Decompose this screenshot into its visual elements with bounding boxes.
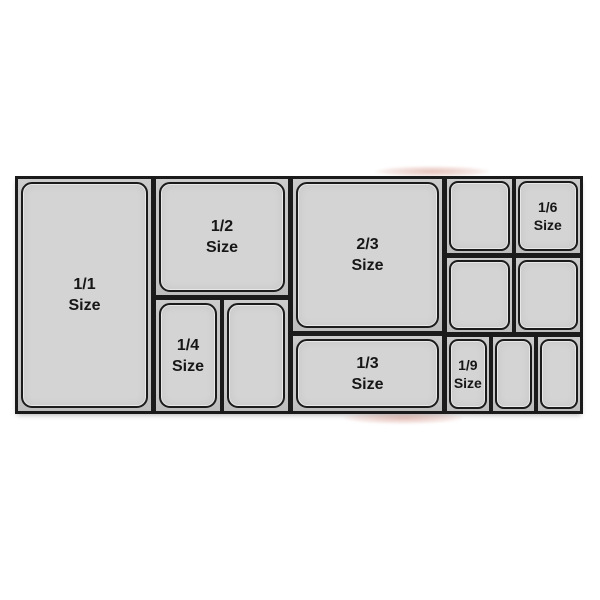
pan-cell: 1/3 Size (293, 336, 442, 411)
pan-cell (493, 337, 535, 411)
pan-1-3-size: 1/3 Size (296, 339, 439, 408)
pan-cell (447, 258, 512, 332)
pan-1-9-unlabeled-2 (540, 339, 578, 409)
pan-fraction: 1/6 (534, 198, 562, 216)
pan-2-3-size: 2/3 Size (296, 182, 439, 328)
pan-cell (516, 258, 581, 332)
pan-1-9-size: 1/9 Size (449, 339, 487, 409)
pan-cell: 1/1 Size (18, 179, 151, 411)
pan-cell (224, 300, 288, 411)
pan-size-word: Size (351, 374, 383, 395)
pan-label: 1/3 Size (351, 353, 383, 395)
pan-1-6-size: 1/6 Size (518, 181, 579, 251)
gastronorm-pan-size-chart: 1/1 Size 1/2 Size (15, 176, 583, 414)
pan-size-word: Size (351, 255, 383, 276)
section-sixth-ninth: 1/6 Size 1/9 (447, 179, 580, 411)
pan-1-6-unlabeled-left (449, 260, 510, 330)
pan-fraction: 1/2 (206, 216, 238, 237)
pan-label: 1/2 Size (206, 216, 238, 258)
pan-fraction: 2/3 (351, 234, 383, 255)
pan-cell (538, 337, 580, 411)
pan-label: 1/1 Size (68, 274, 100, 316)
pan-fraction: 1/4 (172, 335, 204, 356)
pan-size-word: Size (206, 237, 238, 258)
pan-1-1-size: 1/1 Size (21, 182, 148, 408)
pan-size-word: Size (172, 356, 204, 377)
sixth-row-middle (447, 258, 580, 332)
pan-cell: 1/6 Size (516, 179, 581, 253)
pan-fraction: 1/1 (68, 274, 100, 295)
pan-1-9-unlabeled-1 (495, 339, 533, 409)
pan-1-6-unlabeled-right (518, 260, 579, 330)
pan-1-4-unlabeled (227, 303, 285, 408)
pan-label: 1/4 Size (172, 335, 204, 377)
pan-1-6-unlabeled-top (449, 181, 510, 251)
pan-1-4-size: 1/4 Size (159, 303, 217, 408)
pan-fraction: 1/9 (454, 356, 482, 374)
pan-cell (447, 179, 512, 253)
product-diagram-canvas: 1/1 Size 1/2 Size (0, 0, 600, 600)
ninth-row-bottom: 1/9 Size (447, 337, 580, 411)
pan-cell: 1/4 Size (156, 300, 220, 411)
section-full-size: 1/1 Size (18, 179, 151, 411)
sixth-row-top: 1/6 Size (447, 179, 580, 253)
pan-label: 2/3 Size (351, 234, 383, 276)
quarter-row: 1/4 Size (156, 300, 288, 411)
pan-fraction: 1/3 (351, 353, 383, 374)
pan-cell: 1/2 Size (156, 179, 288, 295)
pan-label: 1/6 Size (534, 198, 562, 234)
pan-cell: 1/9 Size (447, 337, 489, 411)
section-thirds: 2/3 Size 1/3 Size (293, 179, 442, 411)
pan-size-word: Size (68, 295, 100, 316)
section-half-quarter: 1/2 Size 1/4 Size (156, 179, 288, 411)
pan-size-word: Size (454, 374, 482, 392)
pan-size-word: Size (534, 216, 562, 234)
pan-label: 1/9 Size (454, 356, 482, 392)
pan-1-2-size: 1/2 Size (159, 182, 285, 292)
pan-cell: 2/3 Size (293, 179, 442, 331)
